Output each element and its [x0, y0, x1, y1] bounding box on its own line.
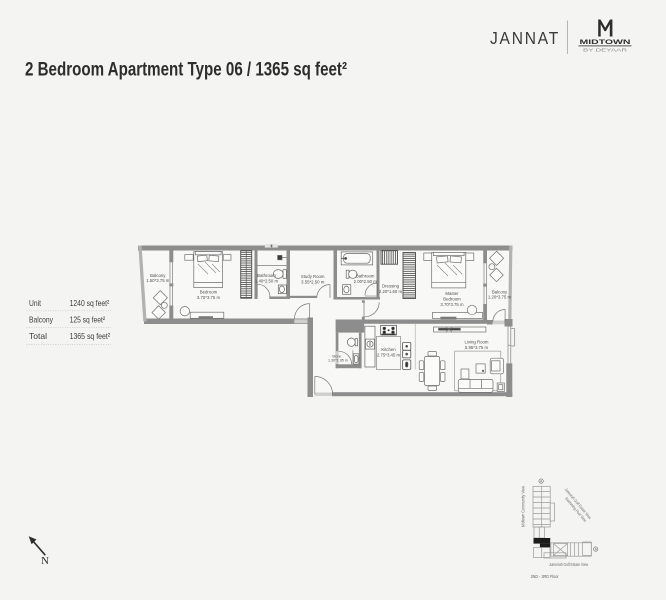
svg-text:3.55*2.50 m: 3.55*2.50 m: [301, 280, 325, 285]
svg-text:Store: Store: [332, 354, 341, 358]
svg-text:Kitchen: Kitchen: [381, 347, 396, 352]
svg-text:Bedroom: Bedroom: [200, 290, 218, 295]
svg-text:Bedroom: Bedroom: [443, 297, 461, 302]
svg-text:Master: Master: [445, 291, 459, 296]
svg-text:Midtown Community View: Midtown Community View: [521, 485, 526, 527]
svg-text:Bathroom: Bathroom: [257, 273, 276, 278]
svg-text:1365 sq feet²: 1365 sq feet²: [70, 331, 111, 341]
svg-text:Balcony: Balcony: [29, 315, 54, 325]
svg-text:1240 sq feet²: 1240 sq feet²: [70, 298, 110, 308]
svg-text:Total: Total: [29, 331, 47, 341]
svg-text:N: N: [41, 555, 49, 567]
svg-text:2ND - 3RD Floor: 2ND - 3RD Floor: [531, 574, 559, 579]
svg-text:BY DEYAAR: BY DEYAAR: [583, 48, 627, 53]
svg-text:MIDTOWN: MIDTOWN: [580, 39, 632, 46]
svg-text:Bathroom: Bathroom: [356, 274, 375, 279]
svg-text:3.70*3.75 m: 3.70*3.75 m: [197, 295, 221, 300]
svg-text:1.40*2.50 m: 1.40*2.50 m: [255, 279, 279, 284]
svg-text:2.75*3.45 m: 2.75*3.45 m: [377, 353, 401, 358]
svg-text:2 Bedroom Apartment Type 06 /: 2 Bedroom Apartment Type 06 / 1365 sq fe…: [25, 60, 347, 81]
svg-text:Unit: Unit: [29, 298, 42, 308]
svg-text:5.95*3.75 m: 5.95*3.75 m: [465, 345, 489, 350]
svg-text:2.00*2.50 m: 2.00*2.50 m: [354, 279, 378, 284]
svg-text:1.20*3.75 m: 1.20*3.75 m: [488, 295, 512, 300]
svg-text:1.50*3.75 m: 1.50*3.75 m: [146, 278, 170, 283]
svg-text:Jumeirah Golf Estate View: Jumeirah Golf Estate View: [549, 562, 589, 567]
svg-text:Study Room: Study Room: [301, 274, 325, 279]
svg-text:2.20*1.60 m: 2.20*1.60 m: [379, 289, 403, 294]
svg-text:3.70*3.75 m: 3.70*3.75 m: [440, 302, 464, 307]
svg-text:1.30*1.95 m: 1.30*1.95 m: [328, 359, 348, 363]
svg-text:JANNAT: JANNAT: [490, 28, 560, 48]
svg-text:Dressing: Dressing: [382, 284, 400, 289]
svg-text:125 sq feet²: 125 sq feet²: [70, 315, 106, 325]
svg-text:Living Room: Living Room: [465, 340, 489, 345]
